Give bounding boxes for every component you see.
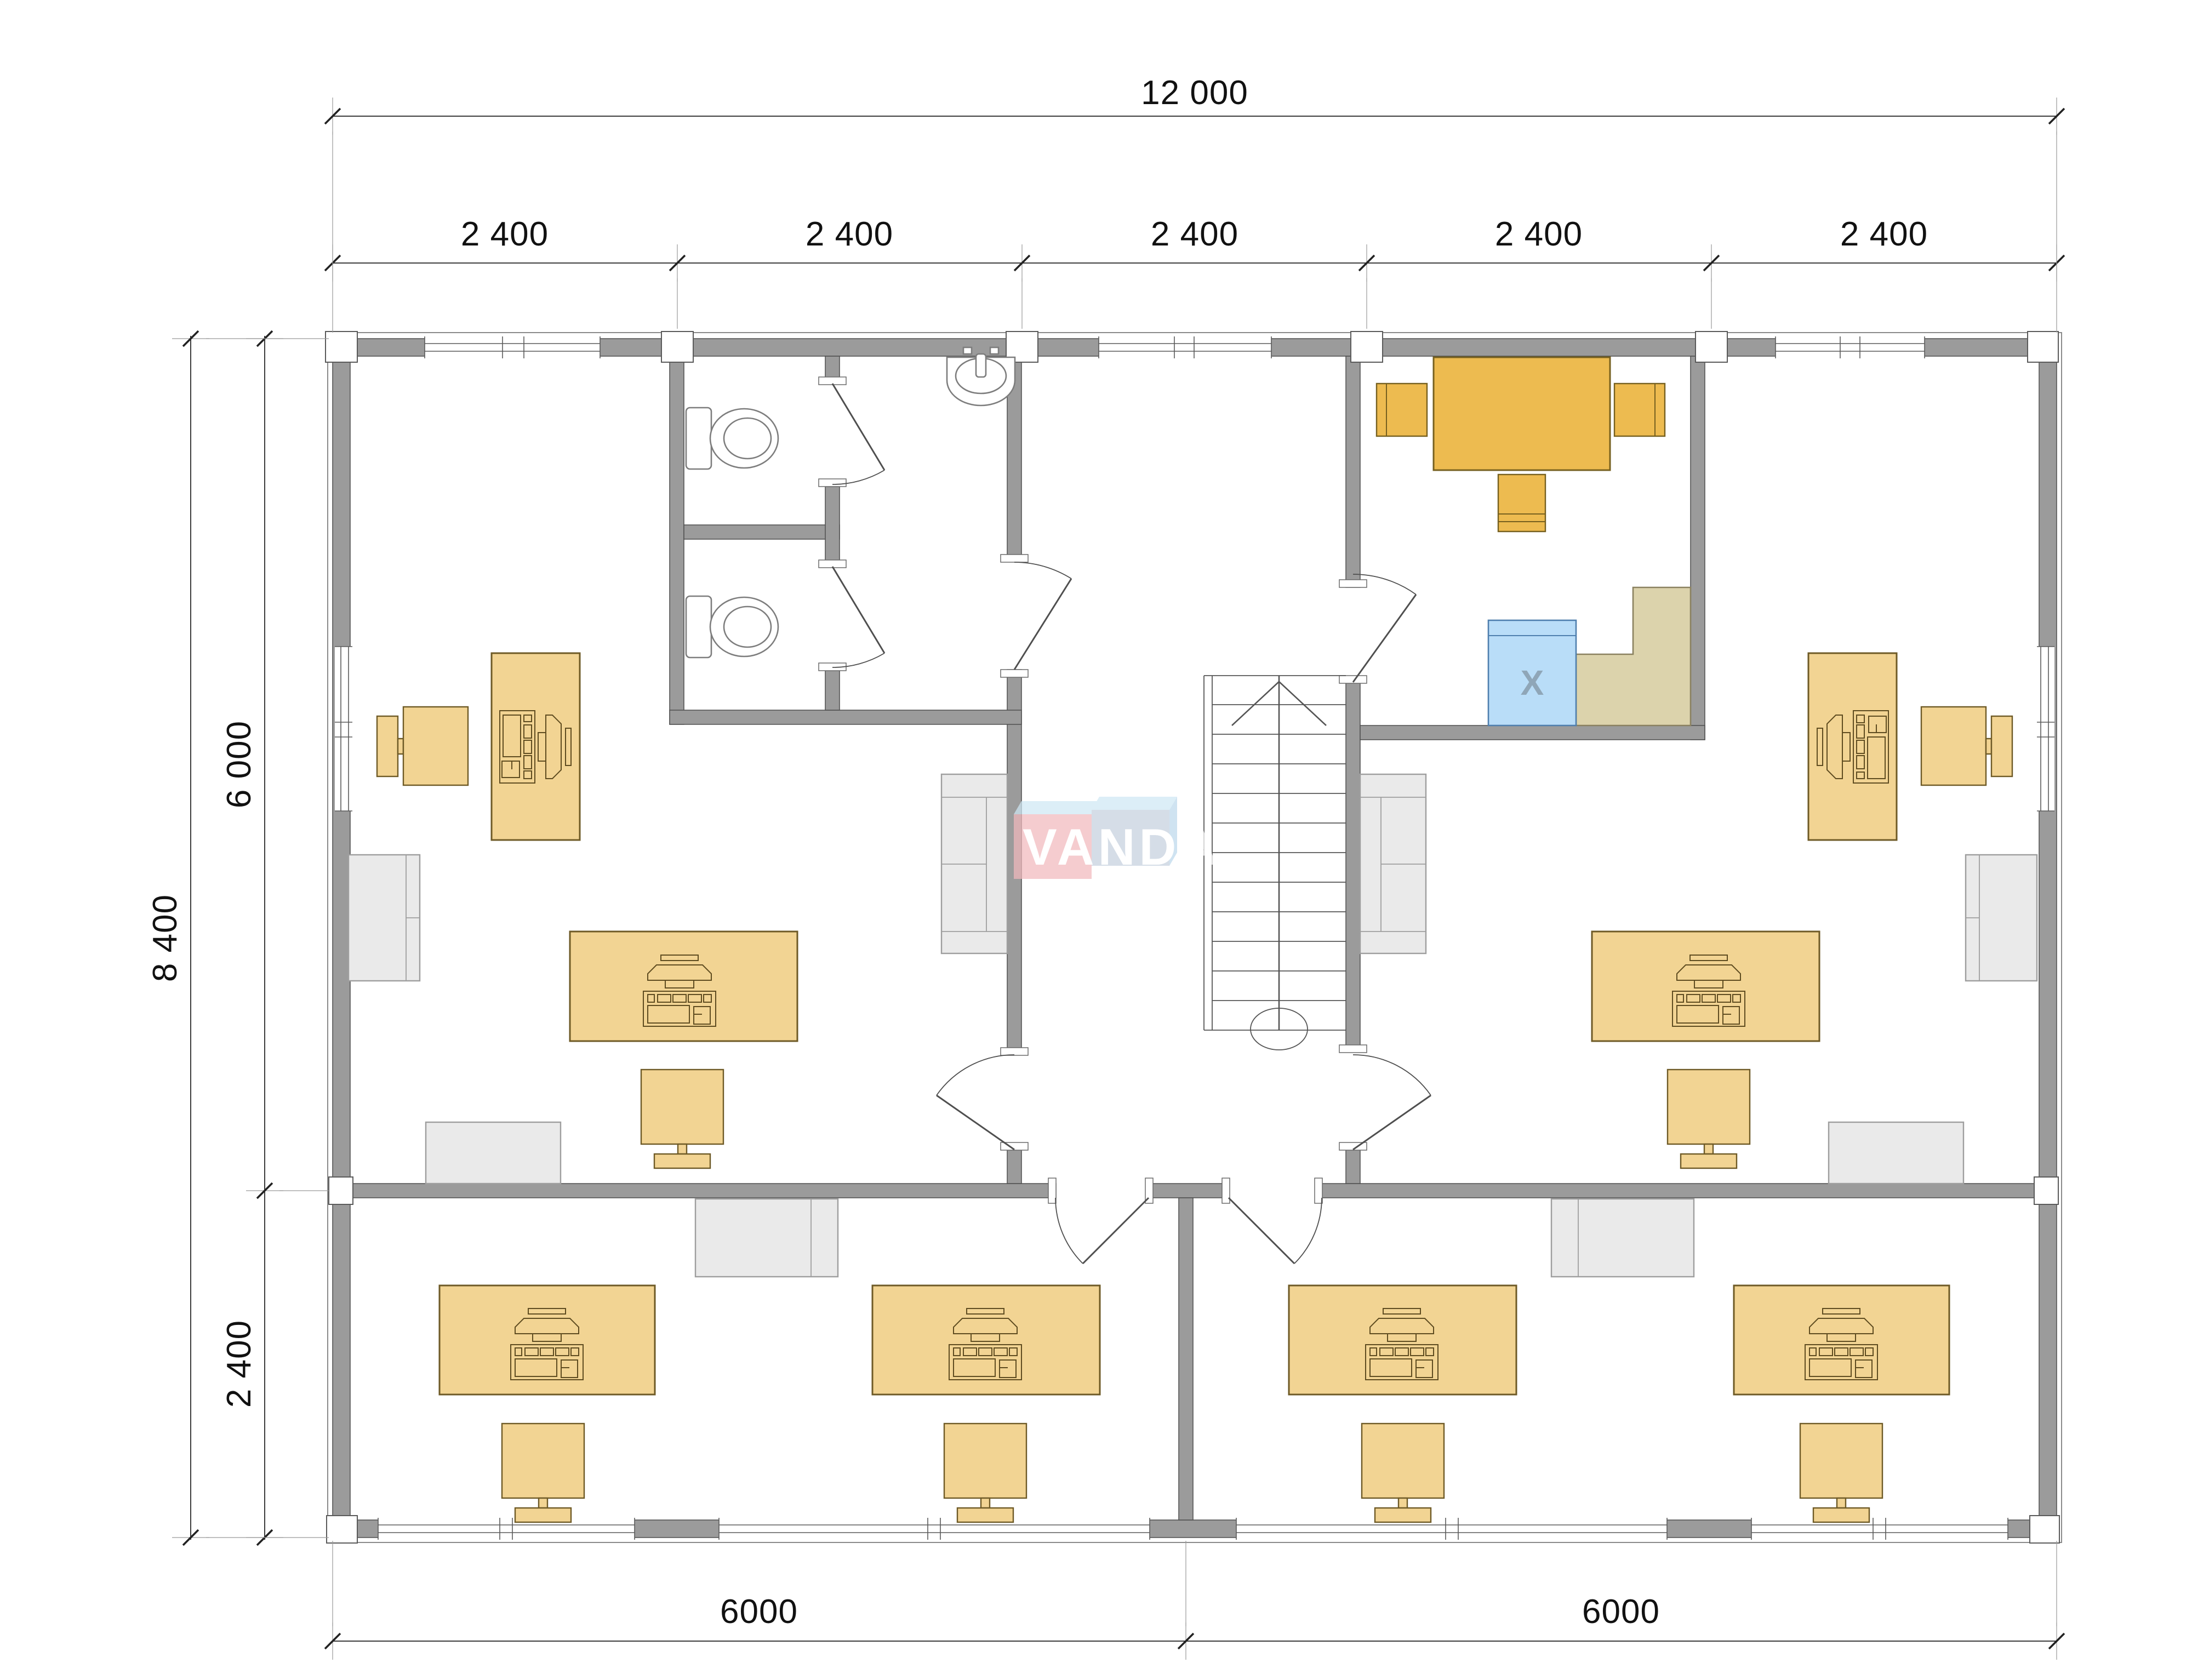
sideboard [426, 1122, 561, 1184]
dim-segment: 2 400 [806, 215, 893, 253]
appliance-x: X [1488, 620, 1576, 725]
dim-left-total: 8 400 [146, 894, 184, 982]
shelf-unit [1360, 774, 1426, 953]
dim-left-lower: 2 400 [220, 1320, 258, 1408]
dim-bottom-left: 6000 [720, 1593, 798, 1631]
sideboard [1829, 1122, 1963, 1184]
door-jamb [1339, 1045, 1367, 1053]
wall-kitchen-bottom [1360, 725, 1705, 740]
column-icon [327, 1516, 357, 1543]
office-chair [502, 1424, 584, 1522]
wall-exterior-right [2039, 339, 2057, 1538]
window-icon [1776, 336, 1925, 358]
wall-wc-bottom [670, 710, 1021, 724]
column-icon [2034, 1177, 2058, 1204]
desk [492, 653, 580, 840]
desk [1592, 932, 1819, 1041]
office-chair [1668, 1070, 1750, 1168]
door-icon [1353, 1055, 1431, 1150]
window-icon [425, 336, 600, 358]
window-icon [719, 1518, 1150, 1540]
cabinet [1551, 1199, 1694, 1277]
desk [1289, 1285, 1516, 1395]
cabinet [349, 855, 420, 981]
window-icon [378, 1518, 635, 1540]
column-icon [326, 332, 357, 362]
wall-hall-right-mid [1346, 682, 1360, 1052]
cabinet [695, 1199, 838, 1277]
office-chair [377, 707, 468, 785]
door-jamb [1001, 1048, 1028, 1055]
floor-plan-drawing: X VANDA 12 000 2 400 2 400 2 400 2 400 2… [0, 0, 2192, 1680]
wall-wc-stall-b [825, 487, 840, 567]
column-icon [2028, 332, 2058, 362]
door-icon [1229, 1198, 1322, 1264]
cabinet [1966, 855, 2037, 981]
dim-segment: 2 400 [461, 215, 549, 253]
window-icon [1751, 1518, 2008, 1540]
desk [1808, 653, 1897, 840]
door-jamb [819, 479, 846, 487]
door-icon [832, 384, 884, 484]
door-jamb [819, 560, 846, 568]
door-icon [1014, 562, 1071, 670]
door-icon [832, 567, 884, 667]
office-chair [1362, 1424, 1444, 1522]
door-jamb [1315, 1178, 1322, 1203]
door-jamb [1048, 1178, 1056, 1203]
window-icon [1099, 336, 1271, 358]
shelf-unit [941, 774, 1007, 953]
office-chair [1921, 707, 2012, 785]
meeting-chair [1614, 384, 1665, 436]
wall-kitchen-right [1691, 356, 1705, 740]
door-jamb [819, 377, 846, 385]
door-icon [1353, 574, 1416, 682]
column-icon [329, 1177, 353, 1204]
wall-hall-left-pier [1007, 1150, 1021, 1184]
watermark-logo-text: VANDA [1023, 818, 1221, 876]
wall-wc-left [670, 356, 684, 724]
staircase [1204, 676, 1346, 1050]
window-icon [1236, 1518, 1667, 1540]
office-chair [641, 1070, 723, 1168]
toilet-icon [686, 408, 778, 469]
office-chair [944, 1424, 1026, 1522]
vanda-watermark: VANDA [1014, 797, 1221, 879]
window-icon [335, 647, 352, 811]
column-icon [1696, 332, 1727, 362]
floor-plan-sheet: X VANDA 12 000 2 400 2 400 2 400 2 400 2… [0, 0, 2192, 1680]
kitchen-meeting-room: X [1377, 357, 1691, 725]
desk [872, 1285, 1100, 1395]
office-chair [1800, 1424, 1882, 1522]
door-jamb [1222, 1178, 1230, 1203]
wall-party-bottom [1179, 1198, 1193, 1520]
wall-wc-stall-c [825, 670, 840, 710]
dim-segment: 2 400 [1151, 215, 1238, 253]
dim-segment: 2 400 [1495, 215, 1583, 253]
door-jamb [1339, 580, 1367, 587]
toilet-icon [686, 596, 778, 658]
wall-interior-main-center [1149, 1184, 1229, 1198]
desk [570, 932, 797, 1041]
wall-wc-partition [684, 525, 840, 539]
door-icon [1055, 1198, 1149, 1264]
window-icon [2037, 647, 2054, 811]
wall-hall-right-upper [1346, 356, 1360, 587]
meeting-chair [1498, 475, 1545, 532]
desk [1734, 1285, 1949, 1395]
dim-bottom-right: 6000 [1582, 1593, 1660, 1631]
kitchen-counter [1576, 587, 1691, 725]
dim-left-upper: 6 000 [220, 721, 258, 808]
wall-interior-main-right [1318, 1184, 2039, 1198]
door-icon [937, 1055, 1014, 1150]
door-jamb [1001, 555, 1028, 562]
column-icon [661, 332, 693, 362]
sanitary-fixtures [686, 347, 1015, 658]
wall-hall-right-pier [1346, 1150, 1360, 1184]
conference-table [1434, 357, 1610, 470]
dim-top-total: 12 000 [1141, 74, 1248, 112]
column-icon [2030, 1516, 2059, 1543]
column-icon [1351, 332, 1383, 362]
door-jamb [1001, 670, 1028, 677]
appliance-x-label: X [1521, 663, 1544, 702]
desk [439, 1285, 655, 1395]
dim-segment: 2 400 [1840, 215, 1928, 253]
workstations [377, 653, 2012, 1522]
wall-exterior-left [333, 339, 350, 1538]
wall-interior-main-left [350, 1184, 1056, 1198]
meeting-chair [1377, 384, 1427, 436]
